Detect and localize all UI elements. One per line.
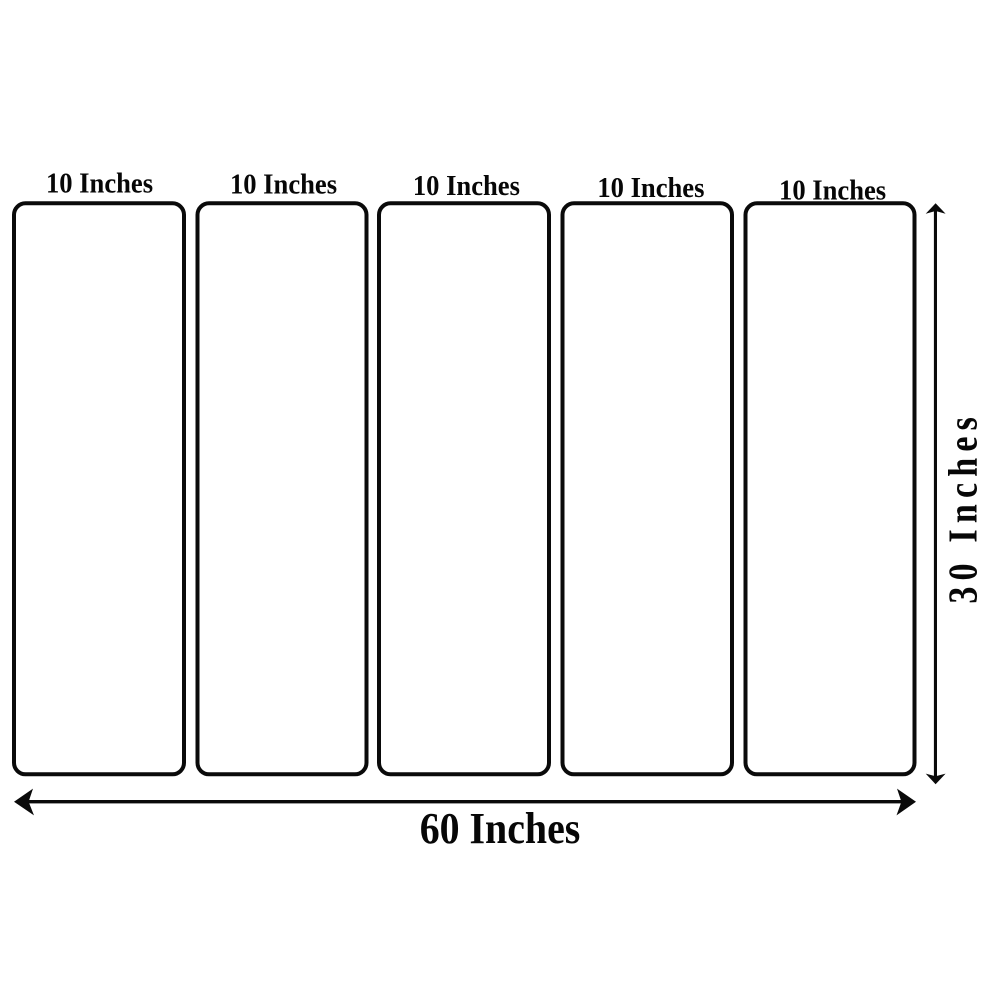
svg-text:10 Inches: 10 Inches: [779, 175, 886, 206]
svg-text:10 Inches: 10 Inches: [46, 168, 153, 199]
svg-text:60 Inches: 60 Inches: [420, 805, 581, 853]
svg-text:30 Inches: 30 Inches: [942, 411, 987, 604]
svg-text:10 Inches: 10 Inches: [597, 172, 704, 203]
svg-text:10 Inches: 10 Inches: [413, 171, 520, 202]
svg-text:10 Inches: 10 Inches: [230, 169, 337, 200]
